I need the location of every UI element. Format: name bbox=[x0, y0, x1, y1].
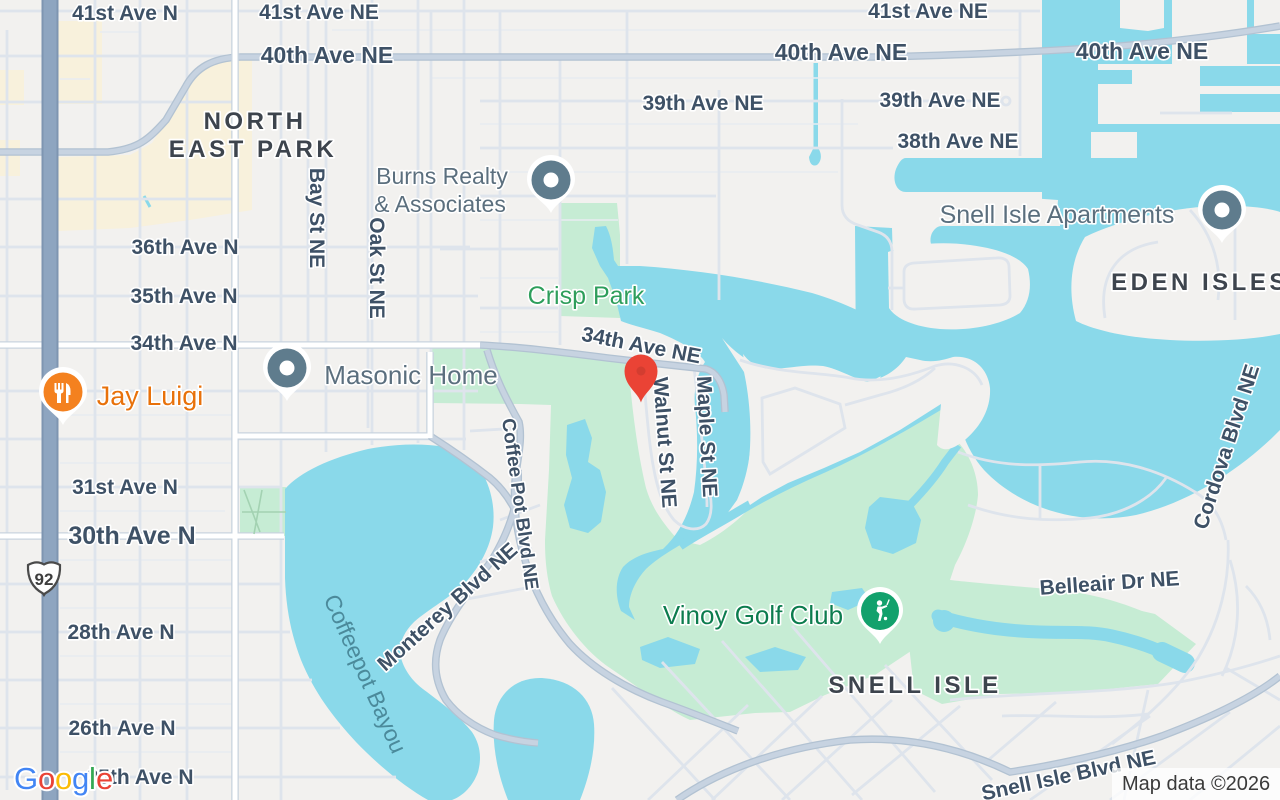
svg-text:NORTH: NORTH bbox=[204, 108, 307, 135]
svg-text:SNELL ISLE: SNELL ISLE bbox=[828, 672, 1001, 699]
svg-text:l: l bbox=[89, 761, 96, 796]
svg-text:G: G bbox=[14, 761, 38, 796]
svg-text:40th Ave NE: 40th Ave NE bbox=[261, 42, 394, 68]
svg-text:Masonic Home: Masonic Home bbox=[324, 360, 497, 390]
svg-text:Oak St NE: Oak St NE bbox=[365, 217, 388, 319]
svg-text:26th Ave N: 26th Ave N bbox=[69, 717, 176, 740]
svg-text:Map data ©2026: Map data ©2026 bbox=[1122, 773, 1270, 795]
svg-text:Vinoy Golf Club: Vinoy Golf Club bbox=[663, 600, 843, 630]
svg-text:41st Ave NE: 41st Ave NE bbox=[868, 0, 988, 23]
svg-text:o: o bbox=[38, 761, 55, 796]
svg-text:EDEN ISLES: EDEN ISLES bbox=[1111, 269, 1280, 296]
svg-text:Crisp Park: Crisp Park bbox=[528, 282, 645, 310]
svg-text:41st Ave NE: 41st Ave NE bbox=[259, 1, 379, 24]
svg-text:30th Ave N: 30th Ave N bbox=[68, 522, 195, 550]
svg-text:Bay St NE: Bay St NE bbox=[305, 168, 328, 268]
svg-text:36th Ave N: 36th Ave N bbox=[132, 236, 239, 259]
svg-text:31st Ave N: 31st Ave N bbox=[72, 476, 178, 499]
svg-text:EAST PARK: EAST PARK bbox=[169, 136, 337, 163]
svg-text:92: 92 bbox=[35, 570, 54, 589]
svg-text:Snell Isle Apartments: Snell Isle Apartments bbox=[940, 201, 1175, 229]
svg-text:g: g bbox=[72, 761, 89, 796]
svg-text:34th Ave N: 34th Ave N bbox=[131, 332, 238, 355]
svg-text:o: o bbox=[55, 761, 72, 796]
svg-text:Jay Luigi: Jay Luigi bbox=[97, 381, 204, 411]
svg-text:35th Ave N: 35th Ave N bbox=[131, 285, 238, 308]
svg-text:Burns Realty: Burns Realty bbox=[376, 163, 508, 189]
svg-text:38th Ave NE: 38th Ave NE bbox=[898, 130, 1019, 153]
svg-text:41st Ave N: 41st Ave N bbox=[72, 2, 178, 25]
svg-text:39th Ave NE: 39th Ave NE bbox=[643, 92, 764, 115]
svg-text:39th Ave NE: 39th Ave NE bbox=[880, 89, 1001, 112]
svg-text:e: e bbox=[96, 761, 113, 796]
svg-text:& Associates: & Associates bbox=[374, 191, 506, 217]
svg-text:28th Ave N: 28th Ave N bbox=[68, 621, 175, 644]
svg-text:40th Ave NE: 40th Ave NE bbox=[1076, 38, 1209, 64]
svg-text:40th Ave NE: 40th Ave NE bbox=[775, 39, 908, 65]
